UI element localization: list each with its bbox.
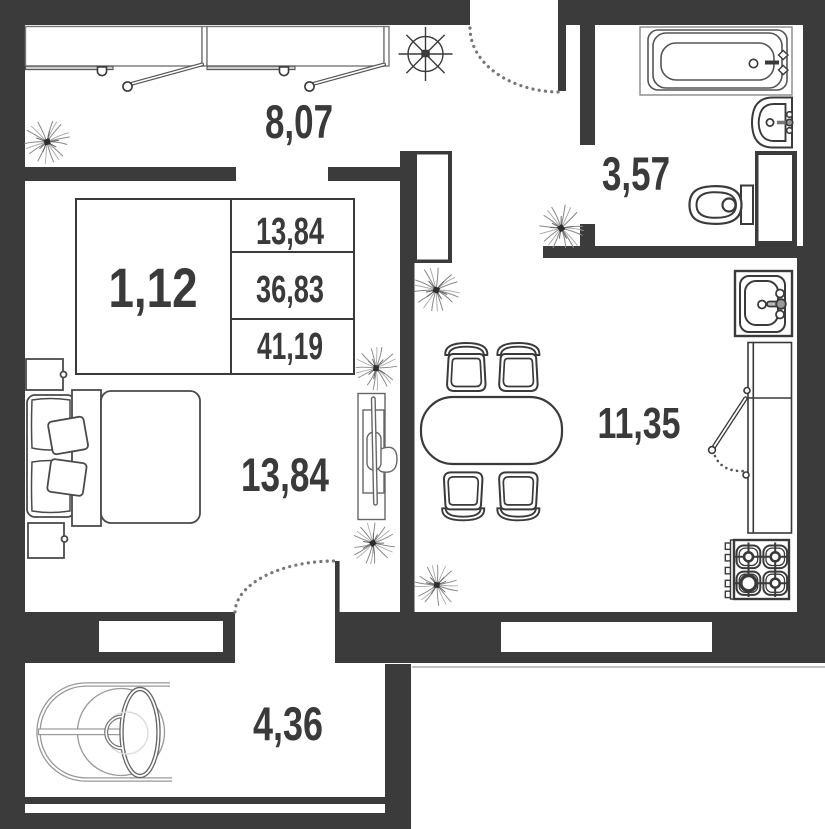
svg-text:41,19: 41,19 (257, 326, 323, 368)
svg-text:36,83: 36,83 (256, 269, 324, 311)
svg-text:8,07: 8,07 (265, 95, 333, 148)
svg-text:13,84: 13,84 (256, 211, 324, 253)
svg-text:4,36: 4,36 (253, 697, 323, 750)
svg-text:1,12: 1,12 (109, 256, 198, 319)
svg-text:3,57: 3,57 (602, 147, 670, 200)
svg-text:13,84: 13,84 (241, 448, 329, 501)
svg-text:11,35: 11,35 (598, 399, 681, 448)
